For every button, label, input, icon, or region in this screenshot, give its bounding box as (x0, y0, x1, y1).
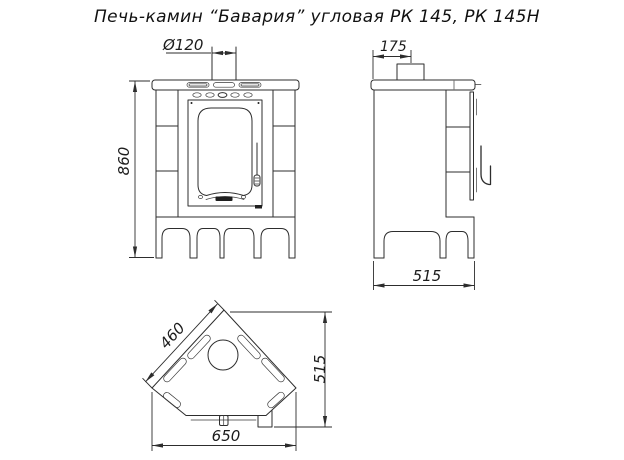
front-view: Ø120 (115, 36, 299, 258)
dim-chimney-diameter: Ø120 (162, 36, 236, 54)
dim-label-top-depth: 515 (311, 355, 329, 384)
drawing-title: Печь-камин “Бавария” угловая РК 145, РК … (94, 7, 540, 27)
plate-slot (187, 83, 209, 88)
top-plate-front (152, 80, 299, 90)
top-view: 460 515 650 (143, 300, 333, 451)
chimney-stub-side (397, 64, 424, 80)
dim-side-depth: 515 (374, 261, 475, 290)
fire-door (188, 100, 262, 209)
chimney-pipe-front (212, 47, 236, 80)
plan-step (258, 411, 272, 428)
dim-label-top-width: 650 (212, 427, 241, 445)
door-handle-front (254, 143, 260, 186)
vent-ovals-row (193, 93, 252, 98)
brand-nameplate (216, 197, 233, 202)
dim-label-chimney-diameter: Ø120 (162, 36, 203, 54)
dim-label-top-side-width: 460 (156, 319, 189, 352)
door-edge-side (470, 92, 474, 200)
top-plate-side (371, 80, 481, 90)
dim-flue-offset: 175 (373, 39, 411, 79)
dim-label-height: 860 (115, 147, 133, 176)
flue-opening (208, 340, 238, 370)
side-view: 175 (371, 39, 491, 290)
plan-door-handle (220, 416, 229, 426)
door-handle-side (481, 146, 491, 185)
technical-drawing: Печь-камин “Бавария” угловая РК 145, РК … (0, 0, 624, 460)
plate-slot (214, 83, 235, 88)
door-latch (255, 205, 262, 209)
door-glass (198, 108, 252, 196)
plan-vent-slots (162, 334, 286, 410)
stove-body-side (374, 90, 491, 258)
dim-top-side-width: 460 (143, 300, 225, 388)
dim-height: 860 (115, 81, 154, 258)
legs-front (156, 229, 295, 259)
dim-label-flue-offset: 175 (380, 39, 407, 55)
dim-label-side-depth: 515 (413, 267, 442, 285)
plate-slot (239, 83, 261, 88)
stove-body-front (156, 90, 295, 258)
dim-top-depth: 515 (230, 312, 332, 427)
drawing-sheet: Печь-камин “Бавария” угловая РК 145, РК … (0, 0, 624, 460)
legs-side (374, 232, 474, 259)
